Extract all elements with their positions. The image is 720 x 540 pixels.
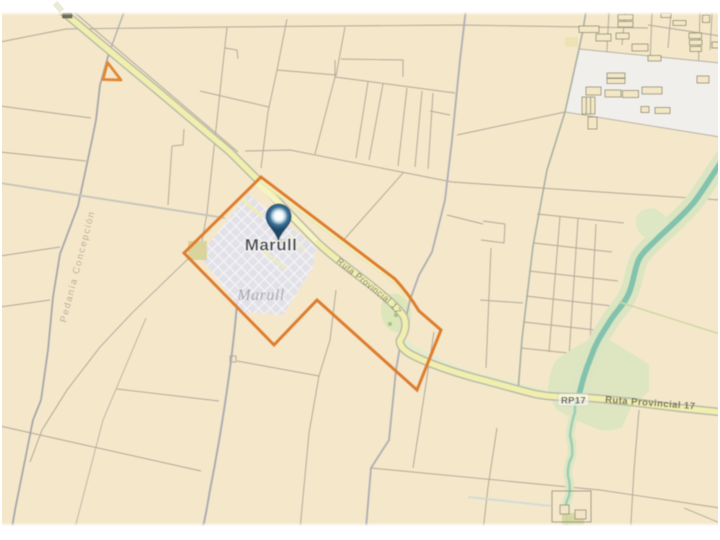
svg-text:RP17: RP17 <box>561 396 586 407</box>
svg-text:Marull: Marull <box>236 287 285 304</box>
svg-text:Marull: Marull <box>245 236 297 255</box>
